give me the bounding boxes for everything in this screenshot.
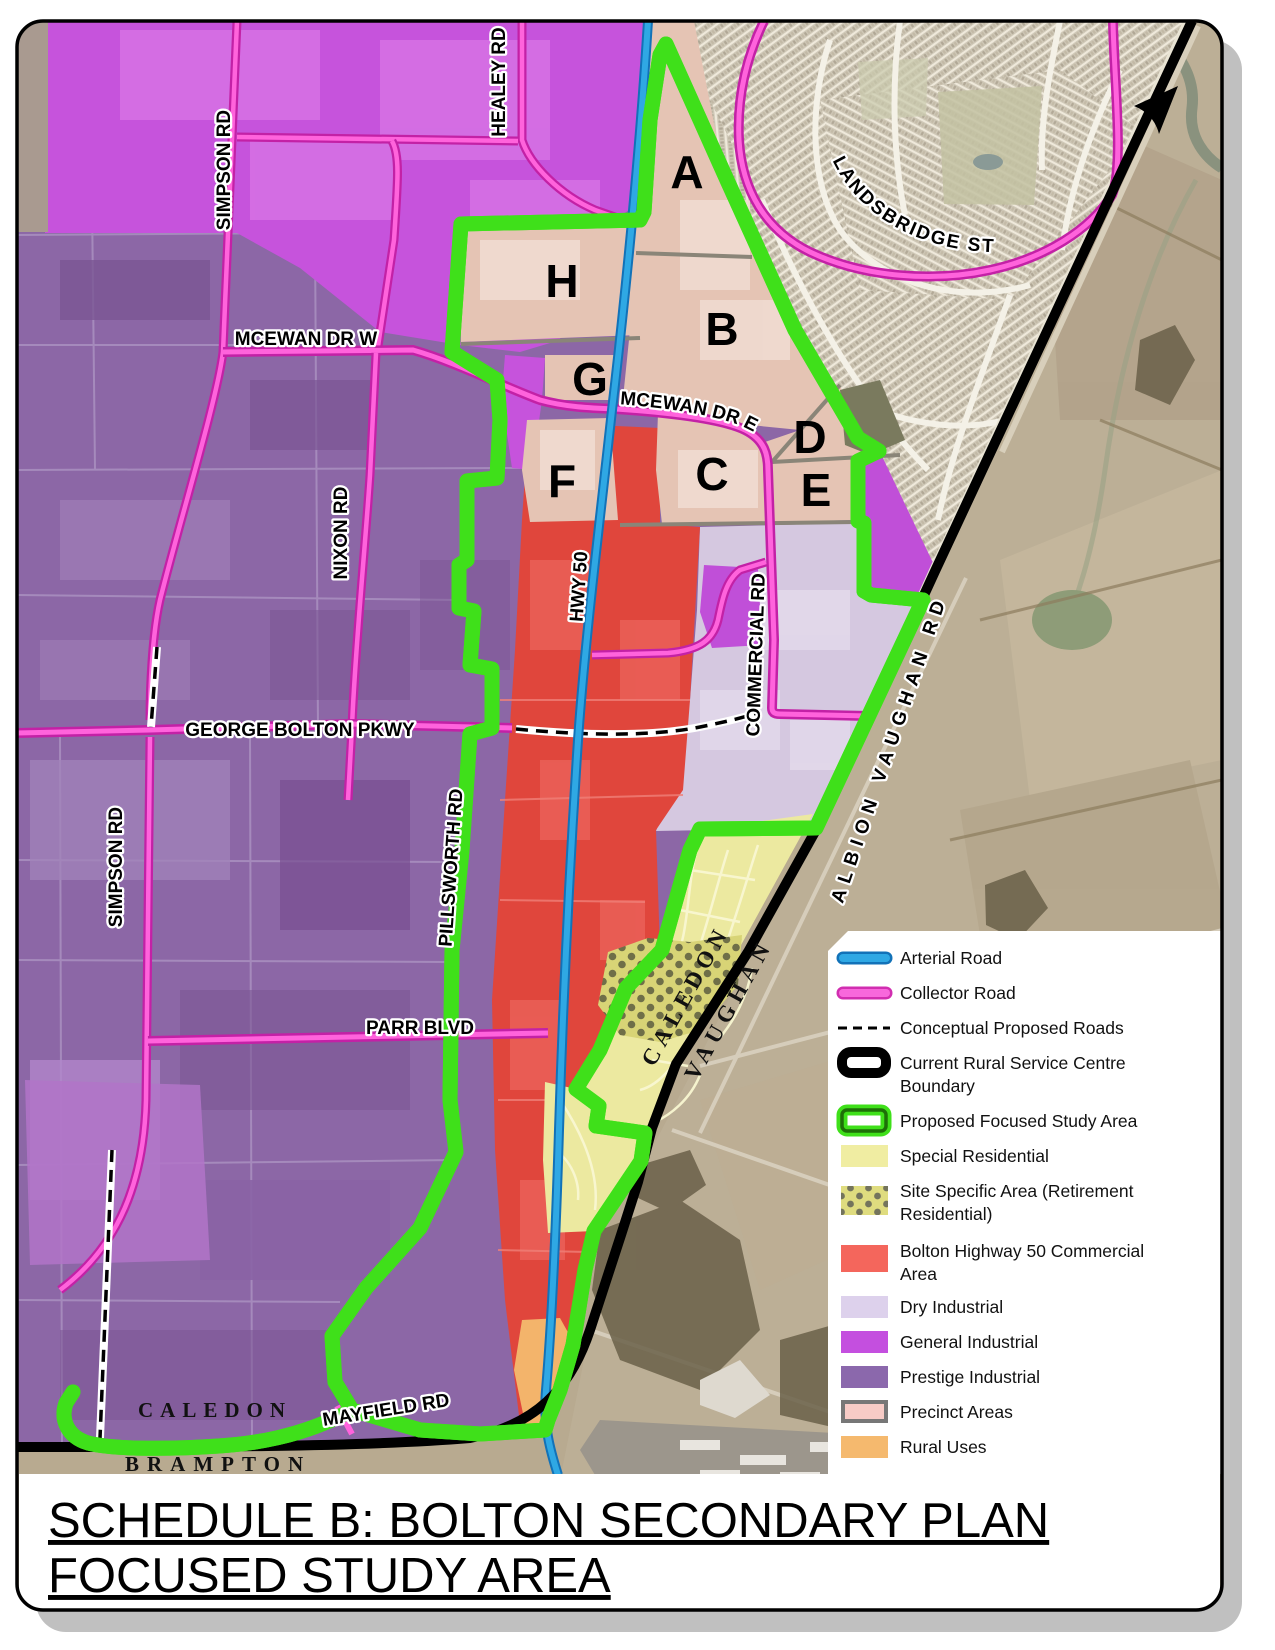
svg-text:MCEWAN DR W: MCEWAN DR W <box>235 329 378 350</box>
svg-text:Residential): Residential) <box>900 1204 992 1224</box>
svg-text:CALEDON: CALEDON <box>138 1398 292 1422</box>
svg-text:FOCUSED STUDY AREA: FOCUSED STUDY AREA <box>48 1549 611 1603</box>
svg-text:BRAMPTON: BRAMPTON <box>125 1452 311 1476</box>
svg-text:Site Specific Area (Retirement: Site Specific Area (Retirement <box>900 1181 1134 1201</box>
svg-text:NIXON RD: NIXON RD <box>331 487 352 580</box>
svg-text:Arterial Road: Arterial Road <box>900 948 1002 968</box>
svg-text:C: C <box>695 448 728 500</box>
svg-text:SIMPSON RD: SIMPSON RD <box>214 110 235 230</box>
svg-text:SIMPSON RD: SIMPSON RD <box>106 807 127 927</box>
svg-text:General Industrial: General Industrial <box>900 1332 1038 1352</box>
svg-text:Dry Industrial: Dry Industrial <box>900 1297 1003 1317</box>
svg-text:Special Residential: Special Residential <box>900 1146 1049 1166</box>
svg-text:GEORGE BOLTON PKWY: GEORGE BOLTON PKWY <box>185 720 415 741</box>
svg-text:PARR BLVD: PARR BLVD <box>366 1018 474 1039</box>
svg-text:Rural Uses: Rural Uses <box>900 1437 987 1457</box>
svg-text:Bolton Highway 50 Commercial: Bolton Highway 50 Commercial <box>900 1241 1144 1261</box>
svg-text:E: E <box>801 464 832 516</box>
svg-text:Area: Area <box>900 1264 937 1284</box>
svg-text:Precinct Areas: Precinct Areas <box>900 1402 1013 1422</box>
svg-text:Current Rural Service Centre: Current Rural Service Centre <box>900 1053 1126 1073</box>
svg-text:F: F <box>548 455 576 507</box>
svg-text:B: B <box>705 303 738 355</box>
svg-text:Collector Road: Collector Road <box>900 983 1016 1003</box>
svg-text:Prestige Industrial: Prestige Industrial <box>900 1367 1040 1387</box>
svg-text:G: G <box>572 353 608 405</box>
svg-text:Boundary: Boundary <box>900 1076 975 1096</box>
svg-text:Conceptual Proposed Roads: Conceptual Proposed Roads <box>900 1018 1124 1038</box>
svg-text:SCHEDULE B: BOLTON SECONDARY P: SCHEDULE B: BOLTON SECONDARY PLAN <box>48 1494 1049 1548</box>
svg-text:HEALEY RD: HEALEY RD <box>489 27 510 136</box>
svg-text:Proposed Focused Study Area: Proposed Focused Study Area <box>900 1111 1138 1131</box>
svg-text:D: D <box>793 411 826 463</box>
svg-text:H: H <box>545 255 578 307</box>
svg-text:A: A <box>670 146 703 198</box>
